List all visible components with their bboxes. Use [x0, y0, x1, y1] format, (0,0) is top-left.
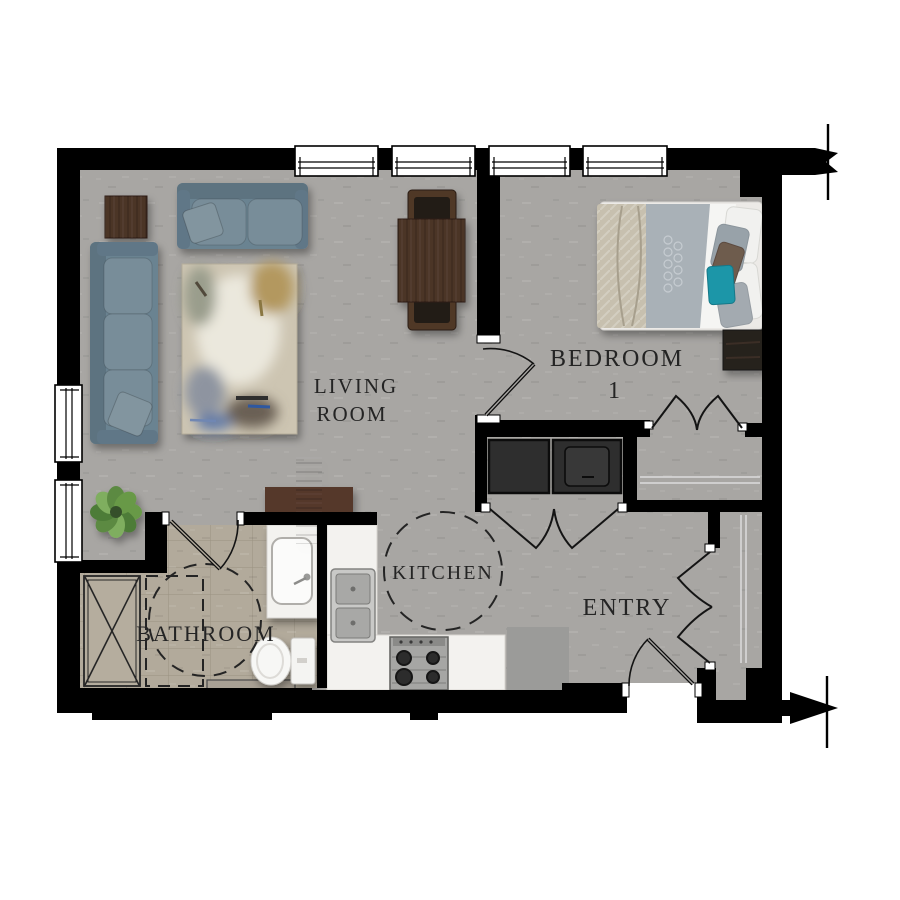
wall-laundry-west	[475, 415, 487, 512]
wall-bathroom-kitchen-divider	[317, 525, 327, 688]
shower	[84, 576, 140, 686]
wall-closet-south	[623, 500, 782, 512]
wall-entry-closet-north	[708, 512, 720, 548]
bedroom-label-line2: 1	[608, 378, 622, 404]
living-room-label-line2: ROOM	[316, 402, 387, 426]
side-table	[105, 196, 147, 238]
bed	[597, 202, 763, 330]
kitchen-label: KITCHEN	[392, 562, 494, 584]
wall-bathroom-north-east	[238, 512, 377, 525]
wall-west-upper	[57, 148, 80, 385]
sofa	[90, 242, 158, 444]
wall-bedroom-closet-east-jamb	[745, 423, 773, 437]
wall-east	[762, 170, 782, 715]
bedroom-label-line1: BEDROOM	[550, 346, 684, 372]
dining-chair	[408, 190, 456, 222]
living-room-label-line1: LIVING	[314, 374, 398, 398]
entry-label: ENTRY	[583, 595, 672, 621]
area-rug-art	[182, 262, 297, 434]
floor-plan-page: LIVING ROOM BEDROOM 1 KITCHEN ENTRY BATH…	[0, 0, 900, 900]
wall-south-entry-west	[562, 683, 627, 713]
wall-west-window-pier	[57, 462, 80, 480]
washer	[489, 440, 549, 493]
range-stove	[390, 637, 448, 690]
plant	[90, 486, 142, 538]
wall-closet-divider	[623, 428, 637, 512]
window	[583, 146, 667, 176]
dining-chair	[408, 298, 456, 330]
wall-south-bathroom	[57, 688, 312, 713]
window	[55, 385, 82, 462]
dining-set	[398, 190, 465, 330]
nightstand	[723, 330, 763, 370]
entry-mat	[507, 627, 569, 690]
window	[392, 146, 475, 176]
floor-plan-drawing: LIVING ROOM BEDROOM 1 KITCHEN ENTRY BATH…	[0, 0, 900, 900]
dining-table	[398, 219, 465, 302]
wall-south-pilaster-2	[410, 713, 438, 720]
window	[55, 480, 82, 562]
window	[489, 146, 570, 176]
kitchen-sink	[331, 569, 375, 642]
window	[295, 146, 378, 176]
loveseat	[177, 183, 308, 249]
wall-living-bedroom-divider	[477, 170, 500, 343]
bathroom-label: BATHROOM	[136, 621, 275, 646]
dryer	[553, 440, 621, 493]
wall-south-pilaster-1	[92, 713, 272, 720]
wall-south-kitchen	[312, 690, 562, 713]
